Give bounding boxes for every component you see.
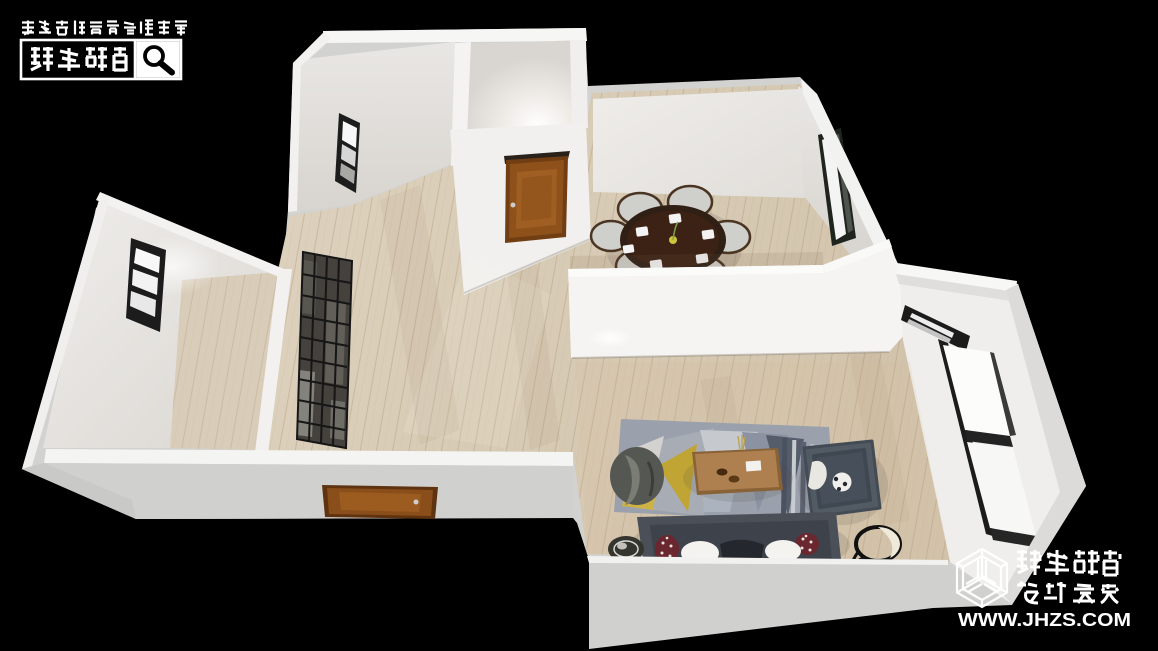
svg-text:WWW.JHZS.COM: WWW.JHZS.COM (958, 609, 1131, 630)
